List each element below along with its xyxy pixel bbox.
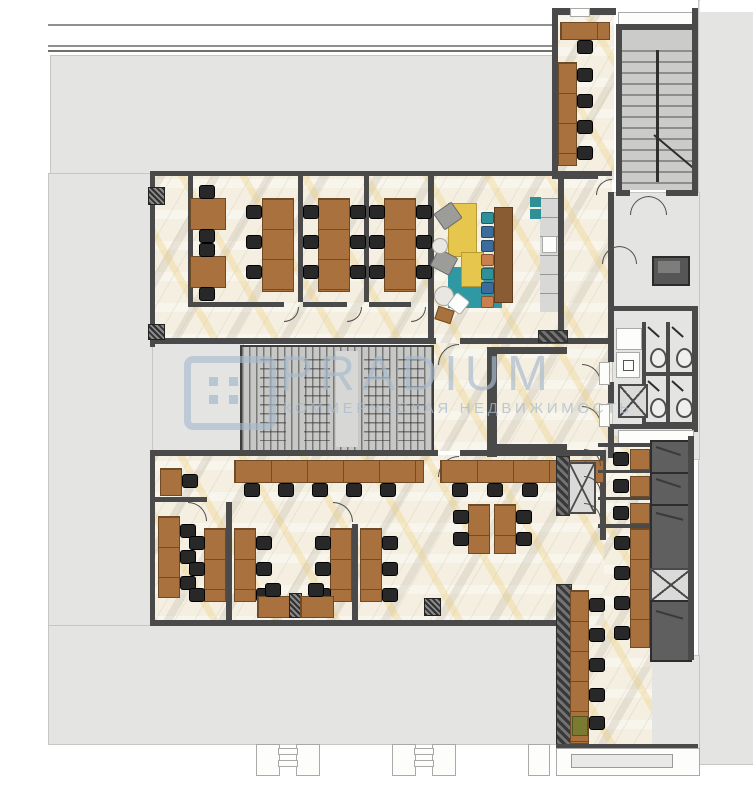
stool: [481, 282, 494, 294]
sink-unit: [542, 236, 557, 253]
wall: [616, 190, 630, 196]
concrete-area-top: [50, 55, 560, 174]
chair: [350, 235, 366, 249]
chair: [369, 265, 385, 279]
dark-room: [650, 472, 692, 506]
wall: [598, 470, 652, 473]
roof-notch: [700, 0, 753, 12]
chair: [346, 483, 362, 497]
wall: [303, 302, 347, 307]
desk-row: [234, 460, 424, 483]
bleacher-stair-block: [240, 345, 434, 454]
chair: [256, 562, 272, 576]
facade-line: [48, 24, 558, 26]
concrete-area-bottom: [48, 625, 558, 745]
wall: [188, 302, 284, 307]
chair: [303, 205, 319, 219]
chair: [315, 562, 331, 576]
facade-post: [296, 744, 320, 776]
chair: [577, 94, 593, 108]
stool: [481, 240, 494, 252]
concrete-area-right: [698, 0, 753, 765]
wall-stub: [538, 330, 568, 343]
door-leaf: [599, 404, 610, 427]
chair: [589, 658, 605, 672]
desk-bank: [630, 528, 650, 648]
chair: [614, 596, 630, 610]
pouf: [432, 238, 448, 254]
toilet: [676, 398, 693, 418]
high-table: [494, 207, 513, 303]
booth-desk: [630, 476, 650, 497]
chair: [369, 235, 385, 249]
desk-bank: [558, 62, 577, 166]
door-line: [656, 512, 684, 521]
desk: [190, 256, 226, 288]
facade-post: [528, 744, 550, 776]
concrete-area-mid: [152, 343, 244, 453]
wall: [598, 497, 652, 500]
wall: [369, 302, 411, 307]
wall: [616, 24, 696, 30]
storage-top: [658, 261, 680, 273]
desk-bank: [330, 528, 352, 602]
stair-treads: [364, 359, 390, 441]
chair: [614, 626, 630, 640]
chair: [244, 483, 260, 497]
wall: [688, 436, 694, 660]
chair: [369, 205, 385, 219]
chair: [246, 235, 262, 249]
dark-room: [650, 504, 692, 570]
chair: [189, 588, 205, 602]
wall: [608, 306, 698, 311]
facade-bar: [414, 760, 434, 767]
desk-bank: [318, 198, 350, 292]
chair: [589, 716, 605, 730]
chair: [199, 185, 215, 199]
door-line: [656, 610, 683, 620]
door-line: [656, 446, 681, 456]
stool: [481, 268, 494, 280]
chair: [487, 483, 503, 497]
chair: [246, 265, 262, 279]
chair: [589, 598, 605, 612]
stair-rail: [656, 50, 659, 182]
wall-stall: [642, 372, 696, 376]
chair: [453, 532, 469, 546]
desk-bank: [234, 528, 256, 602]
floor-plan: PRADIUM КОММЕРЧЕСКАЯ НЕДВИЖИМОСТЬ: [0, 0, 753, 789]
facade-window: [571, 754, 673, 768]
cabinet-teal: [530, 197, 541, 207]
wall: [692, 8, 698, 196]
desk-bank: [384, 198, 416, 292]
toilet: [676, 348, 693, 368]
chair: [380, 483, 396, 497]
chair: [613, 452, 629, 466]
chair: [613, 479, 629, 493]
chair: [182, 474, 198, 488]
wall: [552, 174, 598, 179]
wall: [460, 338, 612, 344]
stair-treads: [260, 359, 286, 441]
chair: [256, 536, 272, 550]
kitchen-counter: [540, 198, 558, 312]
wall: [616, 24, 622, 196]
chair: [303, 265, 319, 279]
door-line: [656, 478, 681, 488]
desk-bank: [158, 516, 180, 598]
chair: [613, 506, 629, 520]
stool: [481, 226, 494, 238]
facade-post: [256, 744, 280, 776]
chair: [614, 566, 630, 580]
facade-band: [556, 748, 700, 776]
wall: [608, 192, 614, 362]
chair: [350, 205, 366, 219]
stair-treads: [398, 359, 424, 441]
stair-landing: [336, 351, 358, 447]
wall: [150, 338, 436, 344]
sink-icon: [623, 360, 634, 371]
stool: [481, 254, 494, 266]
chair: [589, 628, 605, 642]
shaft-x: [650, 568, 692, 602]
wall: [558, 171, 564, 343]
chair: [589, 688, 605, 702]
chair: [453, 510, 469, 524]
chair: [382, 536, 398, 550]
chair: [416, 205, 432, 219]
wall: [150, 450, 438, 456]
chair: [303, 235, 319, 249]
wall: [666, 190, 698, 196]
chair: [416, 265, 432, 279]
wall: [487, 347, 497, 457]
stair-treads: [304, 359, 330, 441]
desk: [190, 198, 226, 230]
dark-room: [650, 600, 692, 662]
column: [424, 598, 441, 616]
concrete-corridor-right: [612, 192, 700, 460]
facade-bar: [414, 748, 434, 755]
sink-unit: [616, 352, 640, 378]
facade-bar: [278, 760, 298, 767]
stool: [481, 296, 494, 308]
desk-bank: [262, 198, 294, 292]
chair: [278, 483, 294, 497]
entry-door: [570, 8, 590, 17]
wall: [692, 306, 698, 432]
desk-bank: [360, 528, 382, 602]
desk-bank: [494, 504, 516, 554]
wall: [598, 443, 652, 447]
door-leaf: [599, 362, 610, 385]
desk-bank: [468, 504, 490, 554]
chair: [577, 68, 593, 82]
chair: [315, 536, 331, 550]
facade-line: [48, 50, 560, 52]
concrete-area-left: [48, 173, 154, 627]
facade-post: [392, 744, 416, 776]
chair: [199, 229, 215, 243]
facade-bar: [278, 748, 298, 755]
booth-desk: [630, 503, 650, 524]
toilet: [650, 398, 667, 418]
desk-bank: [204, 528, 226, 602]
chair: [199, 287, 215, 301]
wall: [608, 382, 614, 404]
desk: [257, 596, 291, 618]
chair: [577, 40, 593, 54]
wall: [150, 171, 612, 176]
chair: [199, 243, 215, 257]
chair: [189, 562, 205, 576]
facade-post: [432, 744, 456, 776]
storage-unit: [652, 256, 690, 286]
dark-room: [650, 440, 692, 474]
chair: [350, 265, 366, 279]
column: [148, 187, 165, 205]
chair: [265, 583, 281, 597]
wall-partition: [226, 502, 232, 622]
desk: [300, 596, 334, 618]
stool: [481, 212, 494, 224]
chair: [416, 235, 432, 249]
wall: [155, 497, 207, 502]
chair: [308, 583, 324, 597]
chair: [516, 510, 532, 524]
shaft-x: [618, 384, 648, 418]
facade-line: [48, 45, 560, 47]
column: [148, 324, 165, 340]
chair: [522, 483, 538, 497]
chair: [189, 536, 205, 550]
wall: [487, 347, 567, 354]
plant: [572, 716, 588, 736]
wall-partition: [352, 524, 358, 622]
sink-counter: [616, 328, 642, 350]
chair: [577, 120, 593, 134]
desk: [160, 468, 182, 496]
toilet: [650, 348, 667, 368]
cabinet-teal: [530, 209, 541, 219]
chair: [577, 146, 593, 160]
chair: [452, 483, 468, 497]
chair: [516, 532, 532, 546]
chair: [382, 562, 398, 576]
chair: [382, 588, 398, 602]
chair: [246, 205, 262, 219]
chair: [312, 483, 328, 497]
booth-desk: [630, 449, 650, 470]
reception-desk: [560, 22, 610, 40]
wall: [612, 424, 696, 429]
chair: [614, 536, 630, 550]
wall: [150, 450, 155, 626]
